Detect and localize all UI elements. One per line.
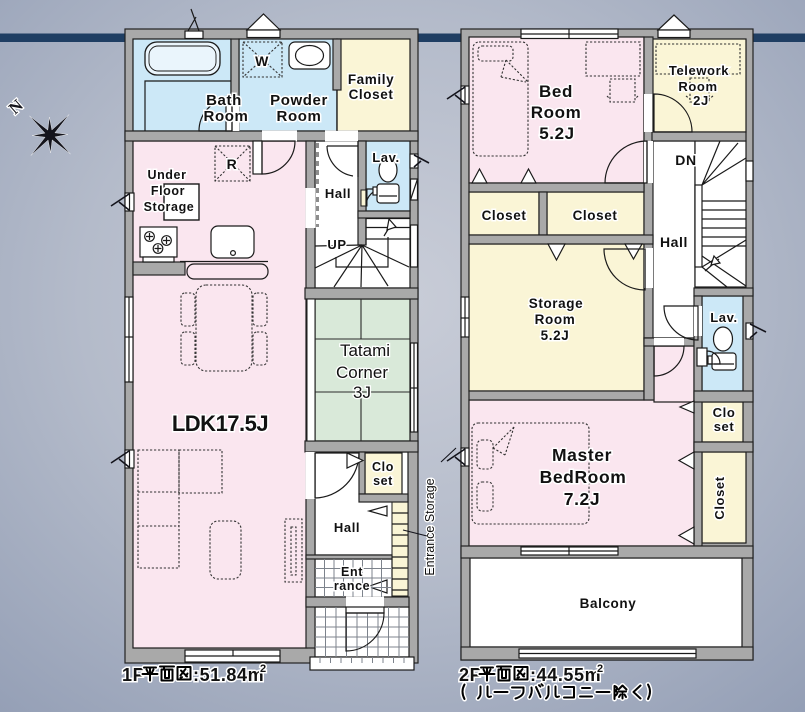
svg-text:Room: Room	[535, 312, 576, 327]
svg-text:Closet: Closet	[349, 87, 394, 102]
svg-text:Clo: Clo	[713, 405, 736, 420]
svg-text:R: R	[227, 156, 238, 172]
svg-text:Closet: Closet	[482, 208, 527, 223]
svg-text:Family: Family	[348, 72, 394, 87]
svg-text:BedRoom: BedRoom	[540, 467, 627, 487]
svg-text:rance: rance	[334, 579, 370, 593]
svg-text:Under: Under	[147, 168, 186, 182]
svg-text:Closet: Closet	[573, 208, 618, 223]
svg-text:Lav.: Lav.	[710, 310, 737, 325]
svg-text:Master: Master	[552, 445, 612, 465]
svg-text:Corner: Corner	[336, 363, 388, 382]
svg-text:Hall: Hall	[660, 234, 688, 250]
svg-text:Room: Room	[531, 103, 582, 122]
svg-text:Ent: Ent	[341, 565, 363, 579]
svg-text:Room: Room	[678, 79, 717, 94]
svg-text:2: 2	[260, 663, 267, 675]
svg-text:Room: Room	[204, 108, 249, 125]
svg-text:Lav.: Lav.	[372, 150, 399, 165]
svg-text:Bed: Bed	[539, 82, 573, 101]
svg-text:Bath: Bath	[206, 92, 242, 109]
svg-text:UP: UP	[327, 237, 346, 252]
svg-text:7.2J: 7.2J	[564, 489, 600, 509]
svg-text:Floor: Floor	[151, 184, 185, 198]
svg-text:Entrance Storage: Entrance Storage	[423, 478, 437, 575]
svg-text:Storage: Storage	[144, 200, 195, 214]
svg-text:Tatami: Tatami	[340, 341, 390, 360]
svg-text::51.84m: :51.84m	[193, 665, 264, 685]
svg-text:Storage: Storage	[529, 296, 583, 311]
svg-text:Hall: Hall	[325, 186, 351, 201]
svg-text:2J: 2J	[693, 93, 709, 108]
svg-text:Closet: Closet	[712, 476, 727, 519]
svg-text:DN: DN	[675, 152, 696, 168]
svg-text:W: W	[255, 53, 269, 69]
svg-text:Powder: Powder	[270, 92, 328, 109]
svg-text:set: set	[714, 419, 735, 434]
svg-text:5.2J: 5.2J	[539, 124, 575, 143]
svg-text:3J: 3J	[353, 383, 371, 402]
svg-text:Room: Room	[277, 108, 322, 125]
svg-text:2: 2	[597, 663, 604, 675]
svg-text:Telework: Telework	[669, 63, 729, 78]
svg-text:5.2J: 5.2J	[541, 328, 570, 343]
svg-text:Clo: Clo	[372, 460, 394, 474]
svg-text:set: set	[373, 474, 393, 488]
svg-text:LDK17.5J: LDK17.5J	[172, 411, 268, 436]
svg-text:Hall: Hall	[334, 520, 360, 535]
svg-text:Balcony: Balcony	[580, 596, 637, 611]
